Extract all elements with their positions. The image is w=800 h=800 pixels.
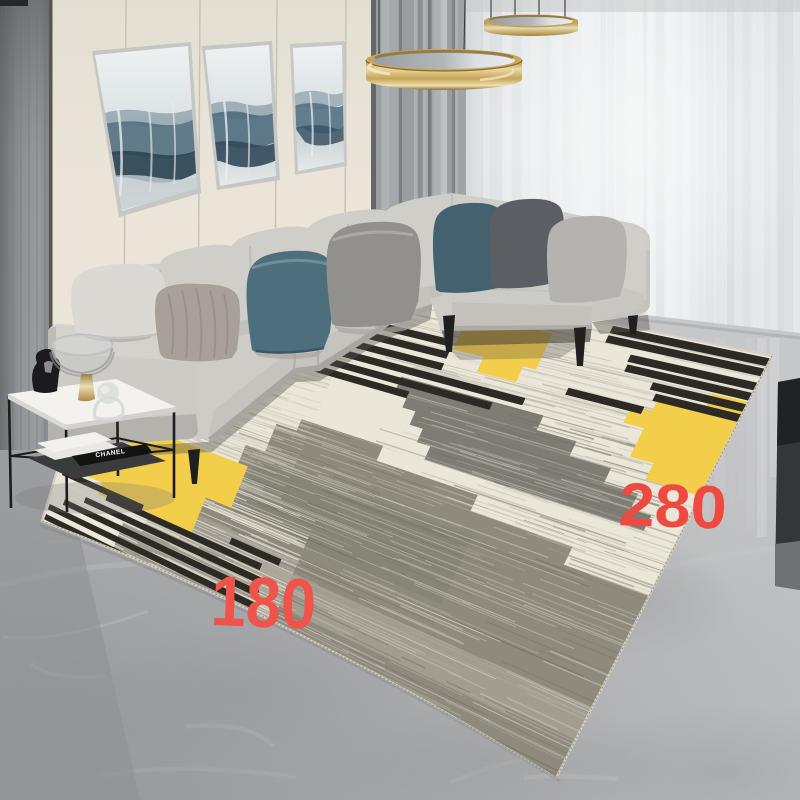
svg-text:180: 180 — [210, 562, 318, 645]
svg-text:280: 280 — [618, 470, 728, 542]
